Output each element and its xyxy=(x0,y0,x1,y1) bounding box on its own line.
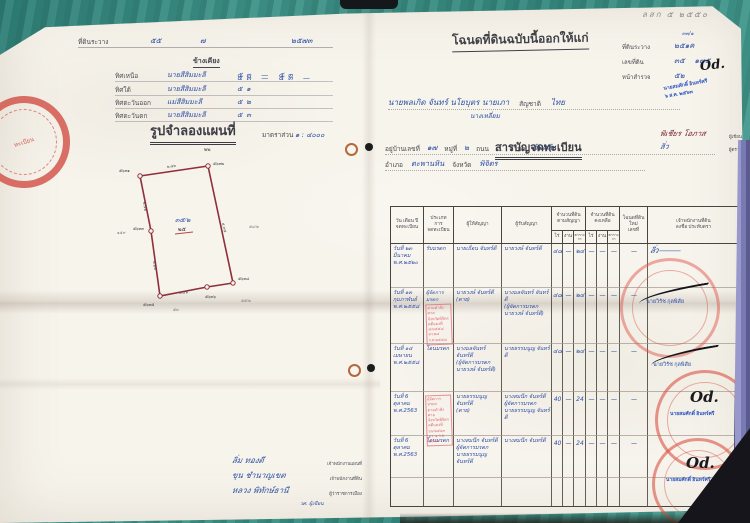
svg-text:๒.๗๖: ๒.๗๖ xyxy=(166,163,176,169)
direction-label: ทิศเหนือ xyxy=(115,71,159,81)
boundary-markers xyxy=(138,164,235,298)
signature-row: ลิ่ม ทองดี เจ้าพนักงานแผนที่ xyxy=(232,452,362,467)
officer-monogram-signature: Od. xyxy=(690,388,719,406)
field-extra: ๓๓/๑ xyxy=(682,30,694,38)
grantee-line: นายพลเกิด จันทร์ นโยบุตร นายเภา สัญชาติ … xyxy=(388,94,680,110)
signature-row: ขุน ชำนาญเขต เจ้าพนักงานที่ดิน xyxy=(232,467,362,482)
scale-value: ๑ : ๔๐๐๐ xyxy=(295,131,324,139)
svg-text:๕๔/๒: ๕๔/๒ xyxy=(249,224,259,229)
parcel-outline xyxy=(140,166,233,296)
corner-labels: ๕๖๓๑ ๕๖๓๒ ๕๖๓๓ ๕๖๓๔ ๕๖๓๕ ๕๖๓๖ xyxy=(119,161,249,307)
svg-text:๒.๕๒: ๒.๕๒ xyxy=(142,201,149,211)
subcol-ngan: งาน xyxy=(563,231,574,244)
neighbor-numbers: ๕๒ xyxy=(237,97,255,108)
left-signature-block: ลิ่ม ทองดี เจ้าพนักงานแผนที่ ขุน ชำนาญเข… xyxy=(232,452,362,497)
scale-label: มาตราส่วน xyxy=(262,132,293,139)
empty-cell xyxy=(552,478,563,506)
reg-giver: นายวงษ์ จันทร์ดี (ตาย) xyxy=(454,288,502,344)
registry-side-signatures: พิเชียร โอภาส ผู้เขียน ลิ่ว ผู้ตรวจ xyxy=(660,126,742,153)
reg-rai-left: — xyxy=(586,244,597,288)
reg-new-deed: — xyxy=(620,436,648,478)
parcel-header-line: ที่ดินระวาง ๕๕ ๗ ๒๕๗๓ xyxy=(78,34,333,48)
reg-ngan: — xyxy=(563,288,574,344)
reg-date: วันที่ ๑๓ กุมภาพันธ์ พ.ศ.๒๕๕๘ xyxy=(391,288,424,344)
background-object xyxy=(340,0,398,9)
reg-rai: ๔๘ xyxy=(552,244,563,288)
svg-text:๕๕/๒: ๕๕/๒ xyxy=(241,298,251,303)
field-value: ๕๒ xyxy=(674,70,685,82)
reg-type-hand: ผู้จัดการ มรดก xyxy=(426,290,452,303)
addr-label: อยู่บ้านเลขที่ xyxy=(385,144,420,154)
map-scale: มาตราส่วน ๑ : ๔๐๐๐ xyxy=(262,130,324,141)
svg-text:๒.๒๒: ๒.๒๒ xyxy=(152,260,158,270)
paper-center-fold xyxy=(362,0,376,523)
punch-hole-dot xyxy=(365,143,373,151)
signature-row: หลวง พิทักษ์ธานี ผู้ว่าราชการเมือง xyxy=(232,482,362,497)
signature-row: พิเชียร โอภาส ผู้เขียน xyxy=(660,126,742,140)
officer-name-blue: นายวิรัช กุลพิสัย xyxy=(646,298,684,306)
reg-type: ผู้จัดการ มรดก ตามคำสั่งศาล จังหวัดพิจิต… xyxy=(424,288,454,344)
empty-cell xyxy=(563,478,574,506)
svg-text:๕๓: ๕๓ xyxy=(173,307,179,312)
addr-value: ตะพานหิน xyxy=(411,158,444,170)
reg-receiver: นายวงษ์ จันทร์ดี xyxy=(502,244,552,288)
addr-label: ถนน xyxy=(476,144,489,154)
reg-wa: ๒๔ xyxy=(574,244,586,288)
reg-type: โอนมรดก xyxy=(424,344,454,392)
map-mark: ๒๒ xyxy=(204,146,211,154)
svg-text:๒.๔๑: ๒.๔๑ xyxy=(179,289,189,295)
reg-ngan-left: — xyxy=(597,436,608,478)
red-round-stamp xyxy=(620,258,720,358)
officer-scribble: ลิ่ว ——— xyxy=(649,246,681,256)
subcol-rai: ไร่ xyxy=(552,231,563,244)
signature-script: หลวง พิทักษ์ธานี xyxy=(231,484,290,497)
subcol-rai: ไร่ xyxy=(586,231,597,244)
parcel-sketch: ๕๖๓๑ ๕๖๓๒ ๕๖๓๓ ๕๖๓๔ ๕๖๓๕ ๕๖๓๖ ๒.๗๖ ๔.๙๕ … xyxy=(105,158,295,313)
reg-ngan-left: — xyxy=(597,244,608,288)
svg-text:๕๖๓๖: ๕๖๓๖ xyxy=(205,294,216,299)
empty-cell xyxy=(454,478,502,506)
reg-ngan-left: — xyxy=(597,288,608,344)
col-header-type: ประเภท การ จดทะเบียน xyxy=(424,207,454,244)
empty-cell xyxy=(597,478,608,506)
col-header-receiver: ผู้รับสัญญา xyxy=(502,207,552,244)
officer-name-blue: นายวิรัช กุลพิสัย xyxy=(653,361,691,369)
field-row: ที่ดินระวาง ๒๕๑ค xyxy=(622,38,740,52)
nationality-value: ไทย xyxy=(551,96,565,109)
reg-ngan: — xyxy=(563,344,574,392)
empty-cell xyxy=(620,478,648,506)
col-header-officer: เจ้าพนักงานที่ดิน ลงชื่อ ประทับตรา xyxy=(648,207,739,244)
registry-heading: สารบัญจดทะเบียน xyxy=(495,138,582,160)
nationality-label: สัญชาติ xyxy=(519,99,541,109)
reg-rai: ๔๘ xyxy=(552,344,563,392)
reg-date: วันที่ ๒๓ มีนาคม พ.ศ.๒๕๒๐ xyxy=(391,244,424,288)
scanned-land-deed-photo: ทะเบียน ที่ดินระวาง ๕๕ ๗ ๒๕๗๓ ข้างเคียง … xyxy=(0,0,750,523)
field-value: ๒๕๑ค xyxy=(674,40,694,52)
reg-date: วันที่ ๑๔ เมษายน พ.ศ.๒๕๕๘ xyxy=(391,344,424,392)
svg-text:๕๖๓๕: ๕๖๓๕ xyxy=(143,302,154,307)
parcel-value-1: ๕๕ xyxy=(150,35,161,47)
parcel-number-old: ๒๕ xyxy=(178,227,186,233)
parcel-label: ที่ดินระวาง xyxy=(78,37,108,47)
col-header-new-deed: โฉนดที่ดินใหม่ เลขที่ xyxy=(620,207,648,244)
officer-name-stamp: นายสมศักดิ์ อินทร์ศรี xyxy=(670,410,714,418)
signature-caption: ผู้ว่าราชการเมือง xyxy=(329,490,362,497)
reg-rai-left: — xyxy=(586,288,597,344)
reg-rai-left: — xyxy=(586,344,597,392)
addr-value: ๑๗ xyxy=(427,142,437,154)
stamp-text: ทะเบียน xyxy=(13,134,36,150)
court-order-stamp: ผู้จัดการมรดก ตามคำสั่งศาล จังหวัดพิจิตร… xyxy=(425,395,453,447)
subcol-ngan: งาน xyxy=(597,231,608,244)
reg-rai-left: — xyxy=(586,436,597,478)
empty-cell xyxy=(608,478,620,506)
parcel-value-3: ๒๕๗๓ xyxy=(291,35,312,47)
reg-giver: นายเถื่อน จันทร์ดี xyxy=(454,244,502,288)
reg-ngan: — xyxy=(563,392,574,436)
svg-text:๕๖๓๔: ๕๖๓๔ xyxy=(238,276,249,281)
pencil-note: ลสก ๕ ๒๕๕๐ xyxy=(642,8,709,21)
reg-ngan: — xyxy=(563,244,574,288)
reg-receiver: นายธรรมนูญ จันทร์ดี xyxy=(502,344,552,392)
empty-cell xyxy=(424,478,454,506)
reg-date: วันที่ 6 ตุลาคม พ.ศ.2563 xyxy=(391,436,424,478)
neighbor-name: แม่สีสิมมะลี xyxy=(167,97,229,108)
reg-type: รับมรดก xyxy=(424,244,454,288)
reg-giver: นางมลจันทร์ จันทร์ดี (ผู้จัดการมรดก นายว… xyxy=(454,344,502,392)
signature-caption: เจ้าพนักงานที่ดิน xyxy=(330,475,362,482)
punch-hole-dot xyxy=(367,364,375,372)
reg-ngan: — xyxy=(563,436,574,478)
reg-receiver: นางสมนึก จันทร์ดี ผู้จัดการมรดก นายธรรมน… xyxy=(502,392,552,436)
neighbors-heading: ข้างเคียง xyxy=(193,56,220,68)
addr-label: หมู่ที่ xyxy=(444,144,457,154)
addr-label: อำเภอ xyxy=(385,160,403,170)
signature-caption: ผู้เขียน xyxy=(729,133,742,140)
subcol-wa: ตาราง วา xyxy=(608,231,620,244)
map-heading: รูปจำลองแผนที่ xyxy=(150,120,236,145)
reg-wa-left: — xyxy=(608,244,620,288)
field-label: ที่ดินระวาง xyxy=(622,42,666,52)
reg-wa-left: — xyxy=(608,436,620,478)
col-header-amount-contract: จำนวนที่ดิน ตามสัญญา xyxy=(552,207,586,231)
reg-wa-left: — xyxy=(608,392,620,436)
reg-wa: ๒๔ xyxy=(574,288,586,344)
reg-receiver: นางมลจันทร์ จันทร์ดี (ผู้จัดการมรดก นายว… xyxy=(502,288,552,344)
reg-rai-left: — xyxy=(586,392,597,436)
field-label: หน้าสำรวจ xyxy=(622,72,666,82)
neighbor-row-east: ทิศตะวันออก แม่สีสิมมะลี ๕๒ xyxy=(115,95,333,109)
officer-name-stamp: นายสมศักดิ์ อินทร์ศรี xyxy=(666,476,710,484)
svg-text:๕๖๓๑: ๕๖๓๑ xyxy=(119,168,130,173)
neighbor-row-south: ทิศใต้ นายสีสิมมะลี ๕๓ — ๕๓ — ๕๑ xyxy=(115,82,333,96)
field-label: เลขที่ดิน xyxy=(622,57,666,67)
signature-caption: เจ้าพนักงานแผนที่ xyxy=(327,460,362,467)
direction-label: ทิศใต้ xyxy=(115,85,159,95)
reg-wa: 24 xyxy=(574,392,586,436)
addr-label: จังหวัด xyxy=(452,160,471,170)
parcel-number-blue: ๓๕/๒ xyxy=(175,217,191,224)
reg-date: วันที่ 6 ตุลาคม พ.ศ.2563 xyxy=(391,392,424,436)
reg-type: ผู้จัดการมรดก ตามคำสั่งศาล จังหวัดพิจิตร… xyxy=(424,392,454,436)
paper-fold-crease-light xyxy=(0,378,380,390)
reg-wa: 24 xyxy=(574,436,586,478)
reg-wa-left: — xyxy=(608,344,620,392)
reg-ngan-left: — xyxy=(597,344,608,392)
punch-hole-ring xyxy=(345,143,358,156)
signature-script: ลิ่ว xyxy=(659,141,670,153)
empty-cell xyxy=(502,478,552,506)
reg-giver: นางสมนึก จันทร์ดี ผู้จัดการมรดก นายธรรมน… xyxy=(454,436,502,478)
reg-new-deed: — xyxy=(620,344,648,392)
grantee-names: นายพลเกิด จันทร์ นโยบุตร นายเภา xyxy=(388,96,509,109)
deed-title: โฉนดที่ดินฉบับนี้ออกให้แก่ xyxy=(452,29,589,53)
parcel-value-2: ๗ xyxy=(200,35,206,47)
empty-cell xyxy=(586,478,597,506)
reg-wa-left: — xyxy=(608,288,620,344)
reg-rai: ๔๘ xyxy=(552,288,563,344)
officer-monogram-signature: Od. xyxy=(699,57,725,75)
col-header-giver: ผู้ให้สัญญา xyxy=(454,207,502,244)
reg-receiver: นางสมนึก จันทร์ดี xyxy=(502,436,552,478)
officer-monogram-signature: Od. xyxy=(686,454,715,472)
svg-text:๑๕๙: ๑๕๙ xyxy=(117,230,126,235)
col-header-date: วัน เดือน ปี จดทะเบียน xyxy=(391,207,424,244)
addr-value: ๒ xyxy=(464,142,469,154)
subcol-wa: ตาราง วา xyxy=(574,231,586,244)
neighbor-name: นายสีสิมมะลี xyxy=(167,84,229,95)
outside-marks: ๑๕๙ ๕๔/๒ ๕๕/๒ ๕๓ xyxy=(117,224,259,312)
neighbor-numbers: ๕๓ xyxy=(237,110,255,121)
signature-script: ขุน ชำนาญเขต xyxy=(231,469,287,482)
reg-wa: ๒๔ xyxy=(574,344,586,392)
empty-cell xyxy=(391,478,424,506)
writer-note: วศ. ผู้เขียน xyxy=(300,500,324,508)
reg-new-deed: — xyxy=(620,392,648,436)
empty-cell xyxy=(574,478,586,506)
signature-row: ลิ่ว ผู้ตรวจ xyxy=(660,140,742,153)
reg-giver: นายธรรมนูญ จันทร์ดี (ตาย) xyxy=(454,392,502,436)
reg-ngan-left: — xyxy=(597,392,608,436)
reg-rai: 40 xyxy=(552,436,563,478)
reg-rai: 40 xyxy=(552,392,563,436)
col-header-amount-remaining: จำนวนที่ดิน คงเหลือ xyxy=(586,207,620,231)
neighbor-name: นายสีสิมมะลี xyxy=(167,70,229,81)
court-order-stamp: ตามคำสั่งศาล จังหวัดพิจิตร คดีแดงที่ ๘/๒… xyxy=(425,304,452,346)
direction-label: ทิศตะวันออก xyxy=(115,98,159,108)
signature-script: พิเชียร โอภาส xyxy=(659,128,707,140)
punch-hole-ring xyxy=(348,364,361,377)
neighbor-numbers: ๕๓ — ๕๓ — ๕๑ xyxy=(237,73,333,95)
grantee-extra-name: นางเหลี่ยม xyxy=(470,111,500,121)
signature-script: ลิ่ม ทองดี xyxy=(231,454,266,467)
svg-text:๕๖๓๒: ๕๖๓๒ xyxy=(213,161,224,166)
svg-text:๕๖๓๓: ๕๖๓๓ xyxy=(133,226,144,231)
